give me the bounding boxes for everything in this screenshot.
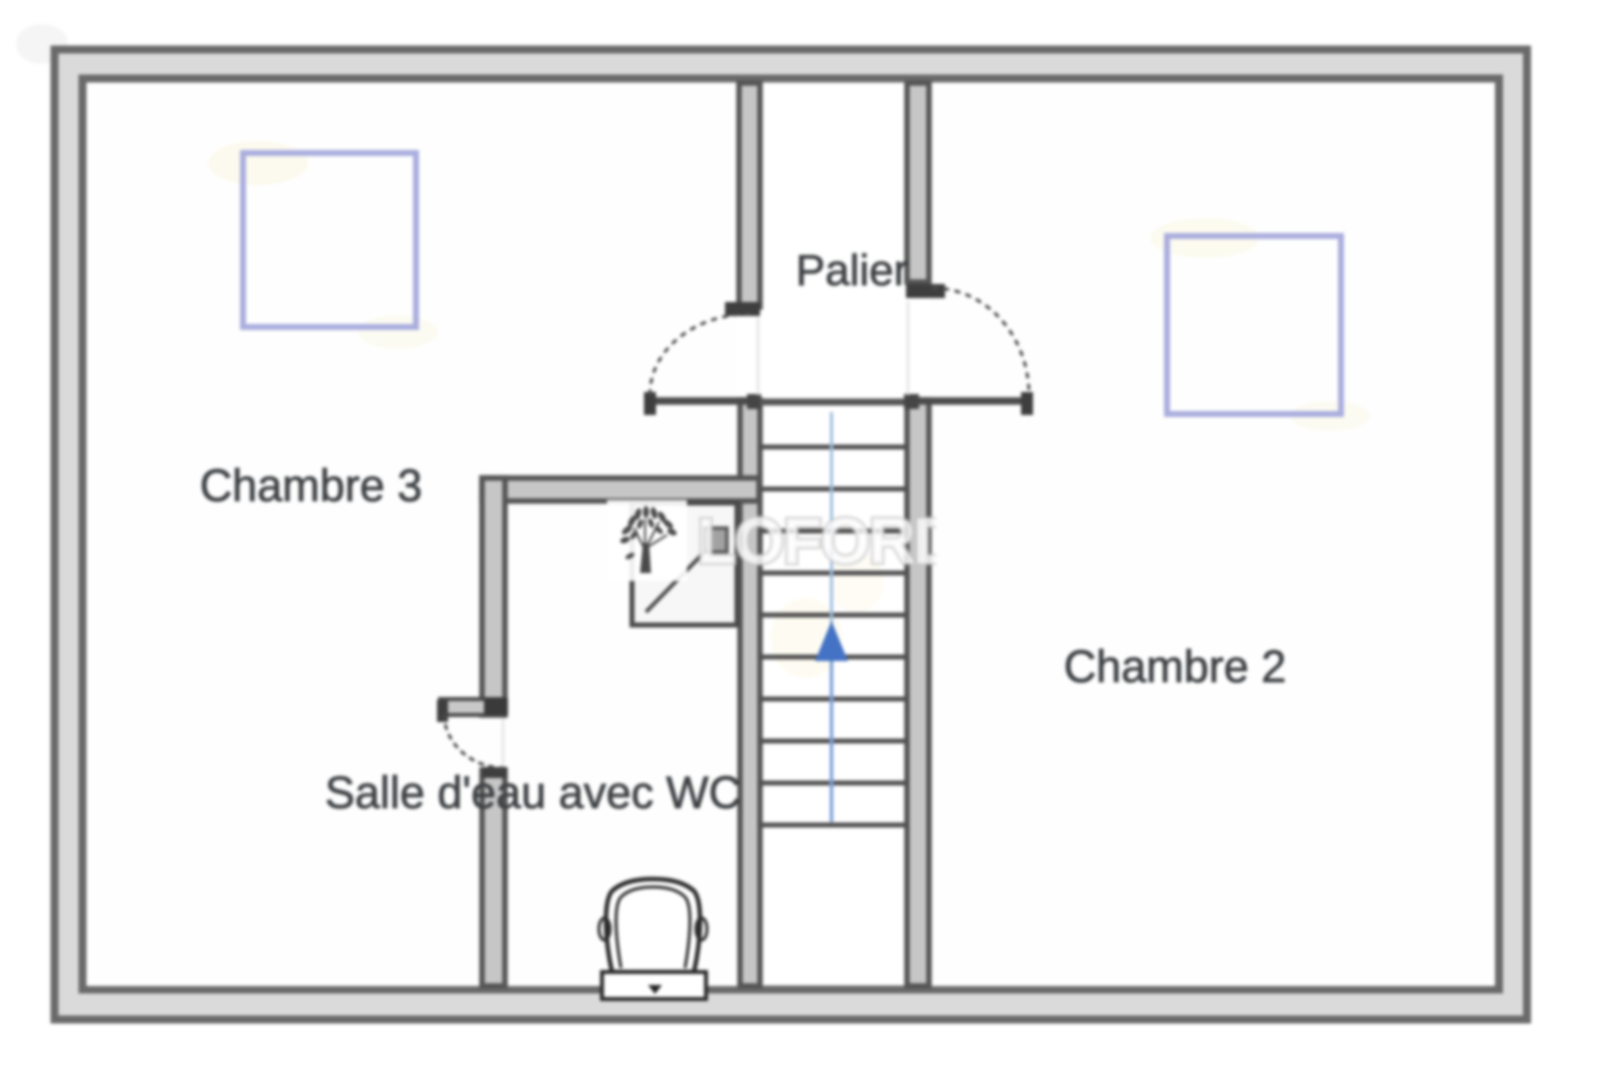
svg-text:Salle d'eau avec WC: Salle d'eau avec WC	[325, 767, 741, 818]
svg-text:Chambre 2: Chambre 2	[1064, 641, 1287, 692]
svg-text:Palier: Palier	[796, 246, 909, 295]
svg-text:LOFORD: LOFORD	[697, 505, 958, 577]
svg-text:Chambre 3: Chambre 3	[200, 460, 423, 511]
